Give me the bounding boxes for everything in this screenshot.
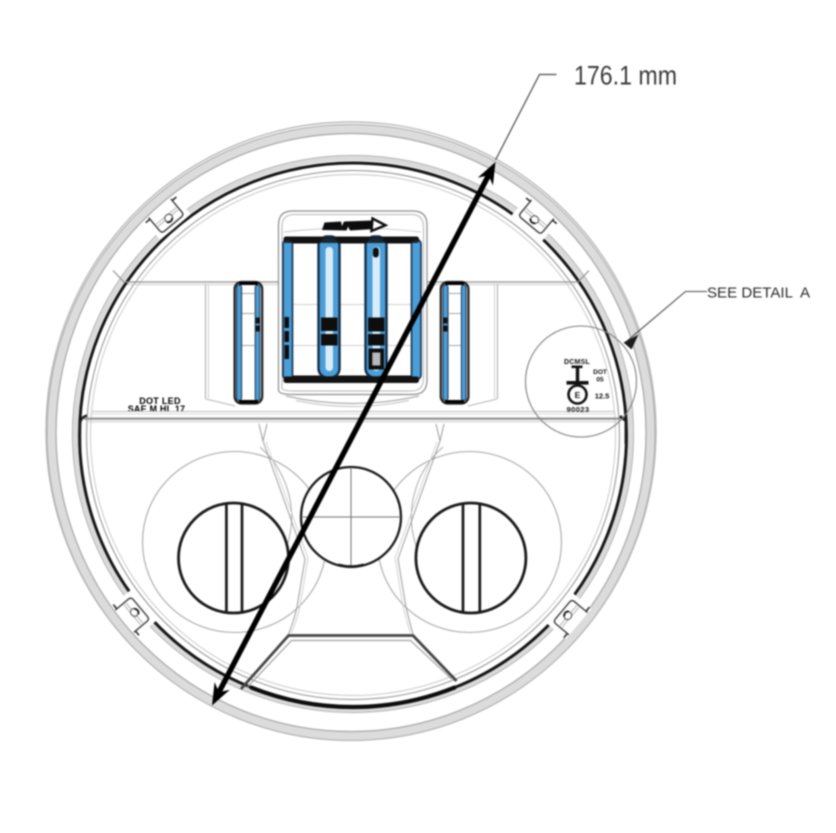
- svg-text:12.5: 12.5: [595, 392, 610, 401]
- svg-text:SEE DETAIL A: SEE DETAIL A: [707, 285, 810, 302]
- svg-text:90023: 90023: [567, 405, 590, 414]
- svg-text:05: 05: [596, 377, 604, 384]
- svg-text:DCMSL: DCMSL: [564, 359, 590, 366]
- svg-text:DOT: DOT: [593, 369, 607, 376]
- svg-text:SAE M HL 17: SAE M HL 17: [128, 404, 186, 414]
- svg-text:176.1 mm: 176.1 mm: [574, 61, 677, 91]
- svg-text:E: E: [575, 390, 581, 400]
